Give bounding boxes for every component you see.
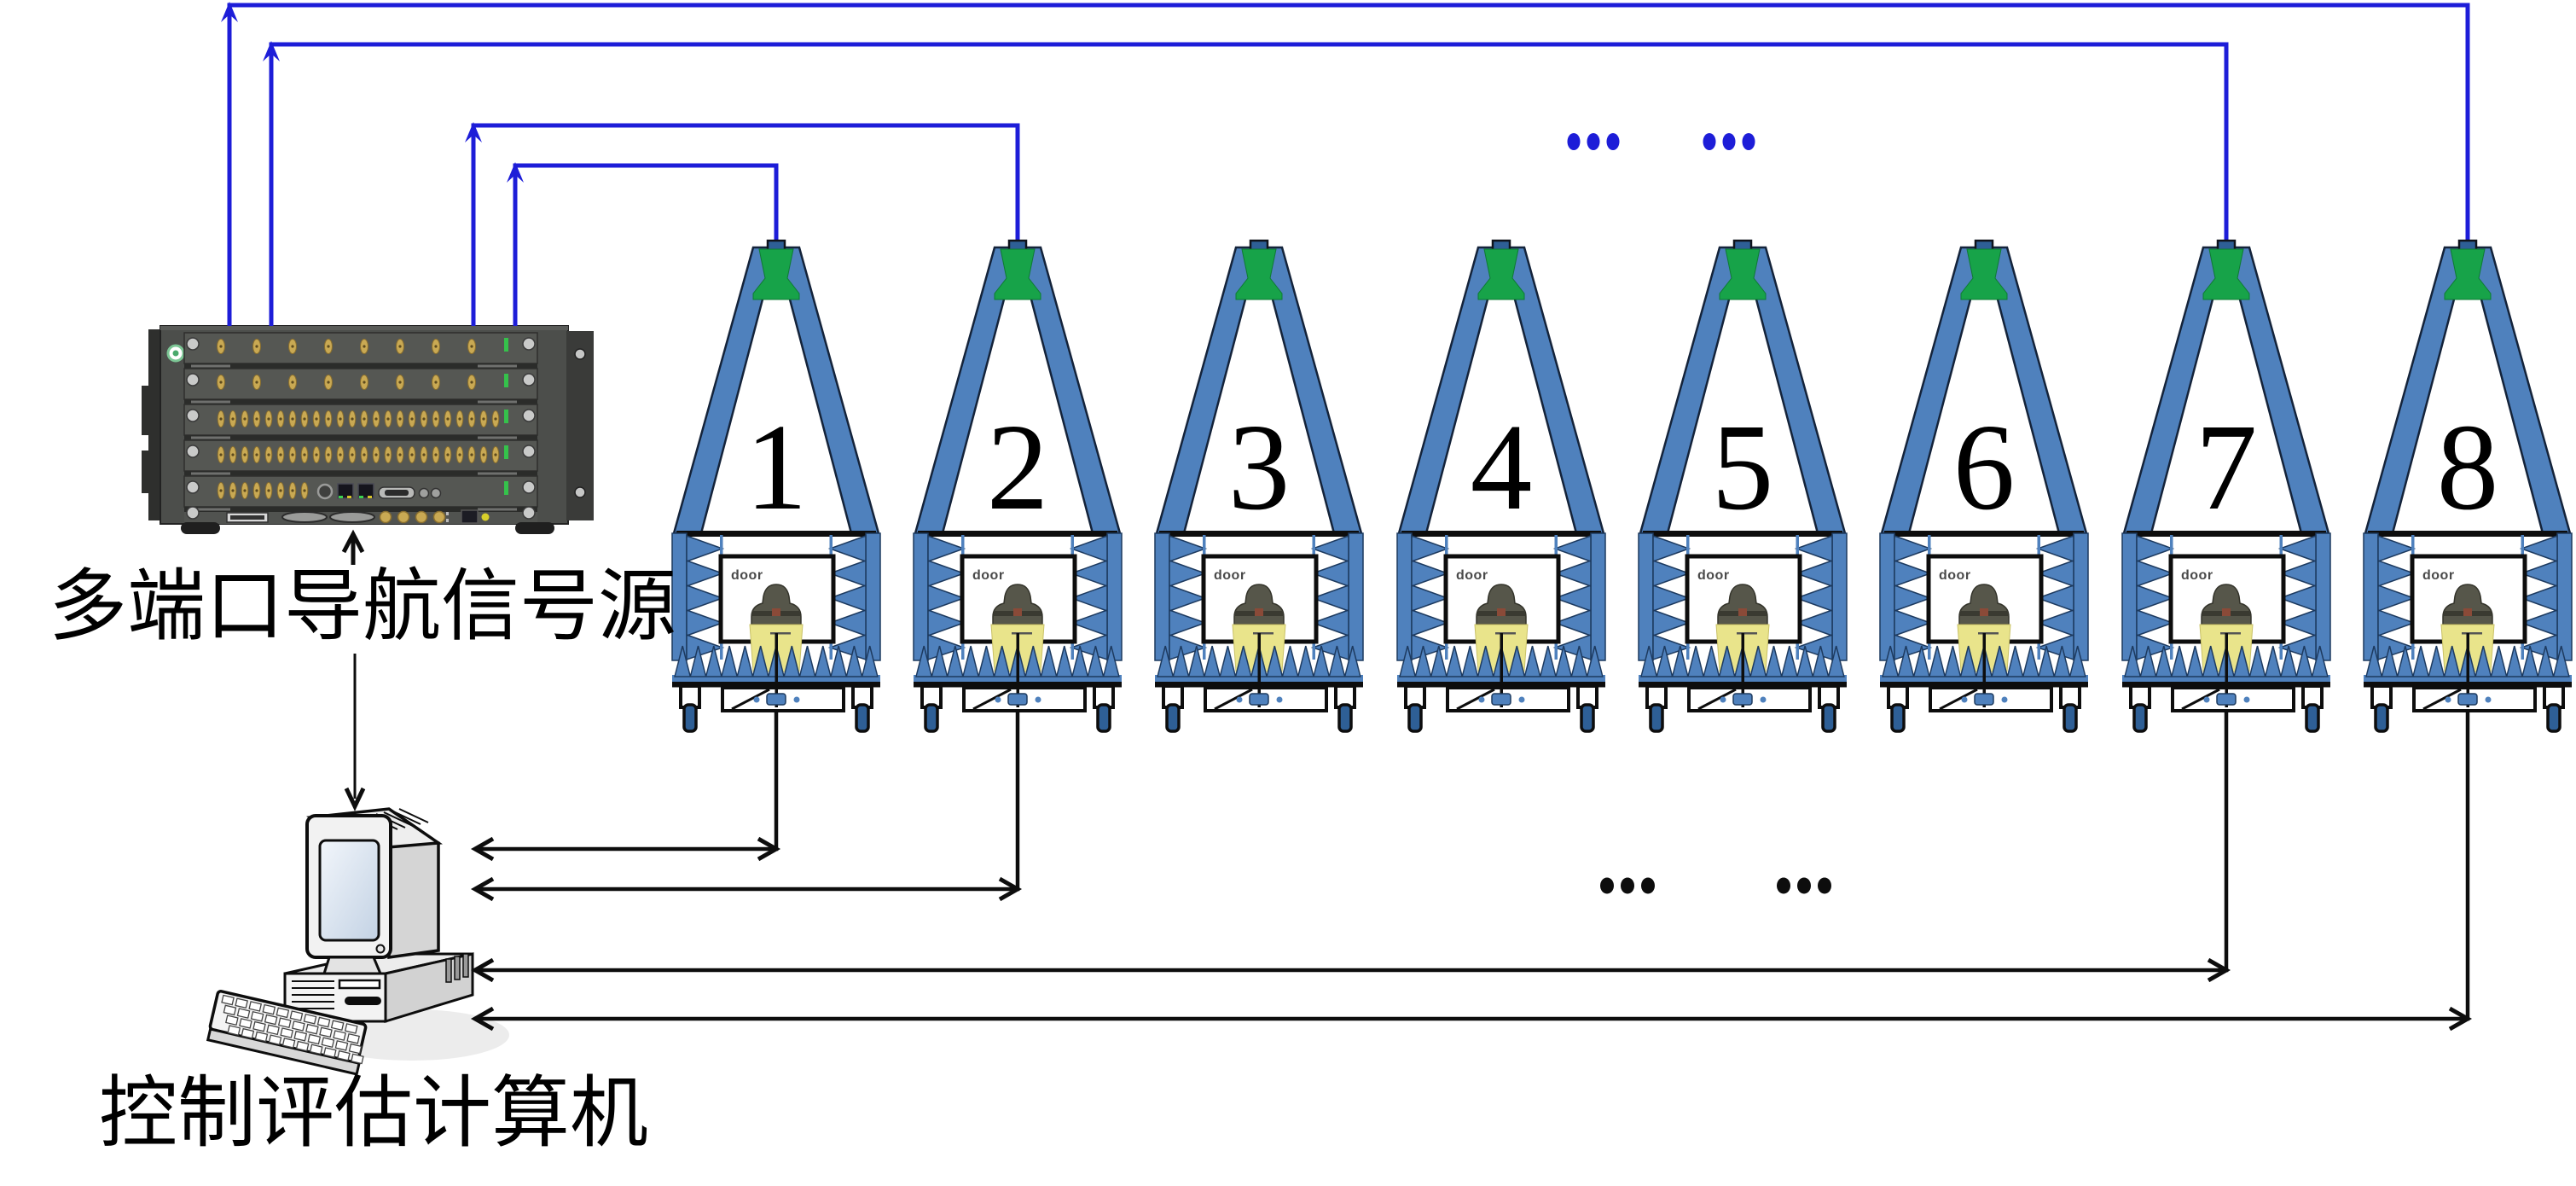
oval-connector bbox=[330, 512, 374, 522]
connector-pin bbox=[458, 417, 461, 420]
drawer-indicator bbox=[1008, 694, 1027, 705]
dut-cable-tick bbox=[770, 632, 791, 635]
chamber-number: 6 bbox=[1953, 399, 2016, 536]
rack-foot bbox=[515, 522, 554, 534]
ellipsis-dot bbox=[1818, 878, 1831, 894]
module-handle bbox=[478, 509, 517, 511]
drawer-indicator bbox=[1733, 694, 1752, 705]
connector-pin bbox=[267, 417, 270, 420]
screw bbox=[523, 507, 535, 519]
drawer-dot bbox=[2486, 697, 2492, 703]
keyboard-key bbox=[310, 1044, 322, 1054]
connector-pin bbox=[327, 417, 329, 420]
connector-pin bbox=[327, 453, 329, 456]
caster-left-wheel bbox=[2134, 705, 2146, 731]
absorber-column-left bbox=[1397, 533, 1412, 660]
drawer-dot bbox=[1962, 697, 1968, 703]
ellipsis-dot bbox=[1587, 133, 1600, 150]
absorber-column-left bbox=[914, 533, 928, 660]
ellipsis-dot bbox=[1568, 133, 1581, 150]
keyboard-key bbox=[276, 1008, 288, 1017]
connector-pin bbox=[243, 489, 246, 491]
ellipsis-black bbox=[1600, 878, 1831, 894]
keyboard-key bbox=[281, 1028, 293, 1038]
door-label: door bbox=[1939, 568, 1971, 583]
signal-source-rack bbox=[142, 326, 594, 534]
connector-pin bbox=[231, 489, 234, 491]
module-handle bbox=[478, 473, 517, 475]
computer-label: 控制评估计算机 bbox=[99, 1070, 648, 1157]
chamber-4: 4 door bbox=[1397, 241, 1605, 731]
keyboard-key bbox=[351, 1054, 363, 1063]
base-top-edge bbox=[1643, 531, 1842, 537]
base-top-edge bbox=[1884, 531, 2084, 537]
rj45-port bbox=[461, 510, 478, 523]
door-label: door bbox=[731, 568, 763, 583]
yellow-led bbox=[482, 514, 490, 521]
chamber-number: 4 bbox=[1471, 399, 1533, 536]
case-side-vent bbox=[463, 954, 468, 977]
ellipsis-dot bbox=[1777, 878, 1790, 894]
case-side-vent bbox=[446, 959, 451, 982]
absorber-column-right bbox=[866, 533, 880, 660]
caster-left-wheel bbox=[684, 705, 696, 731]
keyboard-key bbox=[228, 1026, 240, 1035]
connector-pin bbox=[363, 453, 365, 456]
dome-marking bbox=[2463, 608, 2472, 616]
ellipsis-dot bbox=[1621, 878, 1634, 894]
drawer-dot bbox=[1237, 697, 1243, 703]
absorber-column-right bbox=[1107, 533, 1122, 660]
ethernet-led bbox=[368, 496, 372, 498]
connector-pin bbox=[446, 453, 449, 456]
connector-pin bbox=[339, 417, 341, 420]
connector-pin bbox=[267, 489, 270, 491]
dome-marking bbox=[1255, 608, 1263, 616]
drawer-dot bbox=[754, 697, 760, 703]
connector-pin bbox=[470, 345, 473, 347]
chamber-number: 3 bbox=[1228, 399, 1291, 536]
dome-marking bbox=[2222, 608, 2231, 616]
drawer-indicator bbox=[2217, 694, 2236, 705]
caster-right-wheel bbox=[1581, 705, 1593, 731]
dome-marking bbox=[1738, 608, 1747, 616]
connector-pin bbox=[422, 417, 425, 420]
connector-pin bbox=[374, 453, 377, 456]
connector-pin bbox=[470, 453, 473, 456]
caster-right-wheel bbox=[2064, 705, 2076, 731]
connector-pin bbox=[279, 453, 281, 456]
rack-modules bbox=[184, 333, 537, 523]
door-label: door bbox=[2181, 568, 2213, 583]
connector-pin bbox=[255, 417, 258, 420]
connector-pin bbox=[434, 453, 437, 456]
chamber-number: 2 bbox=[987, 399, 1049, 536]
screw bbox=[187, 374, 199, 386]
mini-led bbox=[446, 519, 449, 522]
drive-slot bbox=[339, 980, 380, 988]
chamber-5: 5 door bbox=[1639, 241, 1847, 731]
absorber-column-left bbox=[1880, 533, 1894, 660]
drawer-indicator bbox=[1250, 694, 1268, 705]
chambers: 1 door 2 bbox=[672, 241, 2572, 731]
up-arrow-icon bbox=[344, 534, 363, 565]
connector-pin bbox=[219, 489, 222, 491]
module-handle bbox=[191, 437, 230, 439]
base-top-edge bbox=[2126, 531, 2326, 537]
keyboard-key bbox=[255, 1032, 267, 1041]
connector-pin bbox=[219, 453, 222, 456]
drawer-dot bbox=[794, 697, 800, 703]
caster-right-wheel bbox=[1339, 705, 1351, 731]
caster-left-wheel bbox=[1651, 705, 1662, 731]
caster-right-wheel bbox=[2548, 705, 2560, 731]
signal-source-label: 多端口导航信号源 bbox=[49, 563, 676, 650]
monitor-stand bbox=[324, 957, 380, 974]
connector-pin bbox=[410, 453, 413, 456]
ellipsis-dot bbox=[1743, 133, 1755, 150]
connector-pin bbox=[363, 381, 365, 383]
keyboard-key bbox=[235, 998, 247, 1008]
connector-pin bbox=[351, 417, 353, 420]
data-cable-chamber-7 bbox=[479, 710, 2226, 970]
connector-pin bbox=[446, 417, 449, 420]
floppy-slot bbox=[345, 997, 381, 1005]
connector-pin bbox=[398, 417, 401, 420]
keyboard-key bbox=[249, 1002, 261, 1011]
keyboard-key bbox=[308, 1034, 320, 1044]
keyboard-key bbox=[283, 1038, 295, 1048]
ellipsis-dot bbox=[1600, 878, 1614, 894]
round-button bbox=[380, 512, 392, 523]
keyboard-key bbox=[320, 1027, 332, 1037]
test-system-diagram: 1 door 2 bbox=[0, 0, 2576, 1186]
connector-pin bbox=[363, 345, 365, 347]
connector-pin bbox=[303, 453, 305, 456]
absorber-column-right bbox=[2316, 533, 2330, 660]
monitor-screen bbox=[320, 840, 379, 940]
screw bbox=[523, 338, 535, 350]
mini-led bbox=[446, 512, 449, 515]
connector-pin bbox=[315, 417, 317, 420]
screw bbox=[187, 507, 199, 519]
connector-pin bbox=[219, 381, 222, 383]
drawer-dot bbox=[2244, 697, 2250, 703]
connector-pin bbox=[351, 453, 353, 456]
screw bbox=[523, 374, 535, 386]
connector-pin bbox=[363, 417, 365, 420]
connector-pin bbox=[315, 453, 317, 456]
module-handle bbox=[478, 365, 517, 368]
absorber-column-right bbox=[1591, 533, 1605, 660]
chamber-6: 6 door bbox=[1880, 241, 2088, 731]
keyboard-key bbox=[297, 1042, 309, 1051]
round-button bbox=[434, 512, 445, 523]
connector-pin bbox=[458, 453, 461, 456]
screw bbox=[187, 445, 199, 457]
module-handle bbox=[191, 473, 230, 475]
ellipsis-blue bbox=[1568, 133, 1755, 150]
status-led bbox=[504, 445, 508, 459]
connector-pin bbox=[291, 489, 293, 491]
data-cable-chamber-1 bbox=[479, 710, 776, 849]
connector-pin bbox=[470, 381, 473, 383]
drawer-dot bbox=[2445, 697, 2451, 703]
connector-pin bbox=[303, 489, 305, 491]
dut-cable-tick bbox=[1978, 632, 1999, 635]
connector-pin bbox=[434, 381, 437, 383]
rack-foot bbox=[181, 522, 220, 534]
keyboard-key bbox=[349, 1044, 361, 1054]
screw bbox=[187, 481, 199, 493]
connector-pin bbox=[327, 381, 329, 383]
caster-left-wheel bbox=[1409, 705, 1421, 731]
caster-right-wheel bbox=[2306, 705, 2318, 731]
status-led bbox=[504, 481, 508, 495]
dut-cable-tick bbox=[2462, 632, 2482, 635]
caster-right-wheel bbox=[856, 705, 868, 731]
dut-cable-tick bbox=[2220, 632, 2241, 635]
rack-tab bbox=[142, 386, 149, 435]
connector-pin bbox=[327, 345, 329, 347]
connector-pin bbox=[339, 453, 341, 456]
keyboard-key bbox=[269, 1035, 281, 1044]
base-top-edge bbox=[1401, 531, 1601, 537]
keyboard-key bbox=[267, 1025, 279, 1034]
dut-cable-tick bbox=[1737, 632, 1757, 635]
keyboard-key bbox=[293, 1021, 305, 1031]
module-handle bbox=[191, 401, 230, 404]
caster-right-wheel bbox=[1098, 705, 1110, 731]
data-cable-links bbox=[475, 710, 2468, 1029]
oval-connector bbox=[282, 512, 327, 522]
keyboard-key bbox=[252, 1012, 264, 1021]
drawer-dot bbox=[2204, 697, 2210, 703]
round-connector bbox=[432, 489, 441, 498]
chamber-number: 8 bbox=[2437, 399, 2499, 536]
connector-pin bbox=[398, 453, 401, 456]
rack-tab bbox=[142, 451, 149, 493]
drawer-dot bbox=[1277, 697, 1283, 703]
keyboard-key bbox=[279, 1018, 291, 1027]
rack-logo-dot bbox=[173, 351, 179, 357]
status-led bbox=[504, 410, 508, 423]
absorber-column-left bbox=[2122, 533, 2137, 660]
keyboard-key bbox=[290, 1011, 302, 1020]
module-handle bbox=[478, 401, 517, 404]
connector-pin bbox=[422, 453, 425, 456]
caster-left-wheel bbox=[1892, 705, 1904, 731]
absorber-column-right bbox=[2557, 533, 2572, 660]
connector-pin bbox=[494, 417, 496, 420]
ethernet-led bbox=[347, 496, 351, 498]
keyboard-key bbox=[345, 1024, 357, 1033]
rf-cable-links bbox=[221, 2, 2468, 326]
keyboard-key bbox=[253, 1022, 265, 1032]
chamber-number: 1 bbox=[746, 399, 808, 536]
round-button bbox=[416, 512, 427, 523]
screw bbox=[523, 481, 535, 493]
connector-pin bbox=[386, 453, 389, 456]
connector-pin bbox=[386, 417, 389, 420]
base-top-edge bbox=[2368, 531, 2567, 537]
connector-pin bbox=[291, 381, 293, 383]
control-computer bbox=[207, 809, 509, 1075]
connector-pin bbox=[279, 489, 281, 491]
keyboard-key bbox=[304, 1014, 316, 1024]
keyboard-key bbox=[240, 1019, 252, 1028]
connector-pin bbox=[231, 417, 234, 420]
drawer-indicator bbox=[1492, 694, 1511, 705]
drawer-dot bbox=[995, 697, 1001, 703]
connector-pin bbox=[219, 417, 222, 420]
keyboard-key bbox=[335, 1041, 347, 1050]
rack-top-highlight bbox=[160, 326, 568, 330]
screw bbox=[187, 338, 199, 350]
drawer-dot bbox=[1761, 697, 1767, 703]
caster-left-wheel bbox=[2376, 705, 2387, 731]
chamber-8: 8 door bbox=[2364, 241, 2572, 731]
connector-pin bbox=[243, 453, 246, 456]
drawer-dot bbox=[1479, 697, 1485, 703]
connector-pin bbox=[267, 453, 270, 456]
connector-pin bbox=[219, 345, 222, 347]
connector-pin bbox=[482, 417, 484, 420]
drawer-dot bbox=[1519, 697, 1525, 703]
drawer-dot bbox=[2002, 697, 2008, 703]
screw bbox=[523, 410, 535, 421]
caster-right-wheel bbox=[1823, 705, 1835, 731]
absorber-column-right bbox=[1349, 533, 1363, 660]
connector-pin bbox=[231, 453, 234, 456]
door-label: door bbox=[1456, 568, 1488, 583]
keyboard-key bbox=[347, 1034, 359, 1044]
ellipsis-dot bbox=[1607, 133, 1620, 150]
absorber-column-right bbox=[1832, 533, 1847, 660]
absorber-column-left bbox=[1155, 533, 1169, 660]
drawer-dot bbox=[1036, 697, 1041, 703]
keyboard-key bbox=[334, 1031, 345, 1040]
keyboard-key bbox=[263, 1005, 275, 1014]
dome-marking bbox=[772, 608, 780, 616]
keyboard-key bbox=[223, 1005, 235, 1014]
connector-pin bbox=[291, 345, 293, 347]
chamber-2: 2 door bbox=[914, 241, 1122, 731]
flat-connector-inner bbox=[230, 515, 264, 520]
dome-marking bbox=[1980, 608, 1988, 616]
base-top-edge bbox=[1159, 531, 1359, 537]
drawer-indicator bbox=[767, 694, 786, 705]
caster-left-wheel bbox=[925, 705, 937, 731]
ellipsis-dot bbox=[1723, 133, 1736, 150]
dut-cable-tick bbox=[1012, 632, 1032, 635]
chamber-1: 1 door bbox=[672, 241, 880, 731]
ellipsis-dot bbox=[1641, 878, 1655, 894]
absorber-column-right bbox=[2074, 533, 2088, 660]
base-top-edge bbox=[918, 531, 1117, 537]
keyboard-key bbox=[338, 1051, 350, 1061]
connector-pin bbox=[291, 417, 293, 420]
connector-pin bbox=[434, 345, 437, 347]
connector-pin bbox=[255, 345, 258, 347]
keyboard-key bbox=[222, 995, 234, 1004]
drawer-dot bbox=[1720, 697, 1726, 703]
keyboard-key bbox=[324, 1048, 336, 1057]
keyboard-key bbox=[265, 1014, 277, 1024]
screw bbox=[575, 349, 585, 359]
ethernet-led bbox=[359, 496, 363, 498]
absorber-column-left bbox=[1639, 533, 1653, 660]
connector-pin bbox=[494, 453, 496, 456]
chamber-7: 7 door bbox=[2122, 241, 2330, 731]
keyboard-key bbox=[318, 1017, 330, 1026]
chamber-number: 7 bbox=[2196, 399, 2258, 536]
chamber-3: 3 door bbox=[1155, 241, 1363, 731]
data-cable-chamber-2 bbox=[479, 710, 1018, 889]
door-label: door bbox=[1214, 568, 1246, 583]
keyboard-key bbox=[237, 1009, 249, 1018]
ellipsis-dot bbox=[1703, 133, 1716, 150]
keyboard-key bbox=[332, 1020, 344, 1030]
chamber-number: 5 bbox=[1712, 399, 1774, 536]
keyboard-key bbox=[322, 1038, 334, 1047]
power-button bbox=[377, 945, 385, 953]
round-connector bbox=[318, 485, 332, 498]
connector-pin bbox=[398, 345, 401, 347]
door-label: door bbox=[972, 568, 1005, 583]
dut-cable-tick bbox=[1495, 632, 1516, 635]
connector-pin bbox=[255, 381, 258, 383]
connector-pin bbox=[434, 417, 437, 420]
connector-pin bbox=[410, 417, 413, 420]
door-label: door bbox=[1697, 568, 1730, 583]
door-label: door bbox=[2422, 568, 2455, 583]
connector-pin bbox=[470, 417, 473, 420]
module-handle bbox=[478, 437, 517, 439]
dome-marking bbox=[1013, 608, 1022, 616]
dsub-inner bbox=[385, 490, 409, 496]
status-led bbox=[504, 374, 508, 387]
module-handle bbox=[191, 365, 230, 368]
connector-pin bbox=[482, 453, 484, 456]
dut-cable-tick bbox=[1253, 632, 1273, 635]
keyboard-key bbox=[306, 1025, 318, 1034]
screw bbox=[523, 445, 535, 457]
connector-pin bbox=[255, 489, 258, 491]
status-led bbox=[504, 338, 508, 352]
connector-pin bbox=[303, 417, 305, 420]
caster-left-wheel bbox=[1167, 705, 1179, 731]
keyboard-key bbox=[294, 1032, 306, 1041]
absorber-column-left bbox=[2364, 533, 2378, 660]
connector-pin bbox=[243, 417, 246, 420]
round-connector bbox=[420, 489, 429, 498]
screw bbox=[575, 487, 585, 497]
ethernet-led bbox=[339, 496, 343, 498]
base-top-edge bbox=[676, 531, 876, 537]
drawer-indicator bbox=[1975, 694, 1993, 705]
round-button bbox=[398, 512, 409, 523]
connector-pin bbox=[374, 417, 377, 420]
connector-pin bbox=[291, 453, 293, 456]
connector-pin bbox=[398, 381, 401, 383]
connector-pin bbox=[255, 453, 258, 456]
ellipsis-dot bbox=[1797, 878, 1811, 894]
dome-marking bbox=[1497, 608, 1506, 616]
connector-pin bbox=[279, 417, 281, 420]
case-side-vent bbox=[455, 956, 460, 980]
keyboard-key bbox=[241, 1029, 253, 1038]
